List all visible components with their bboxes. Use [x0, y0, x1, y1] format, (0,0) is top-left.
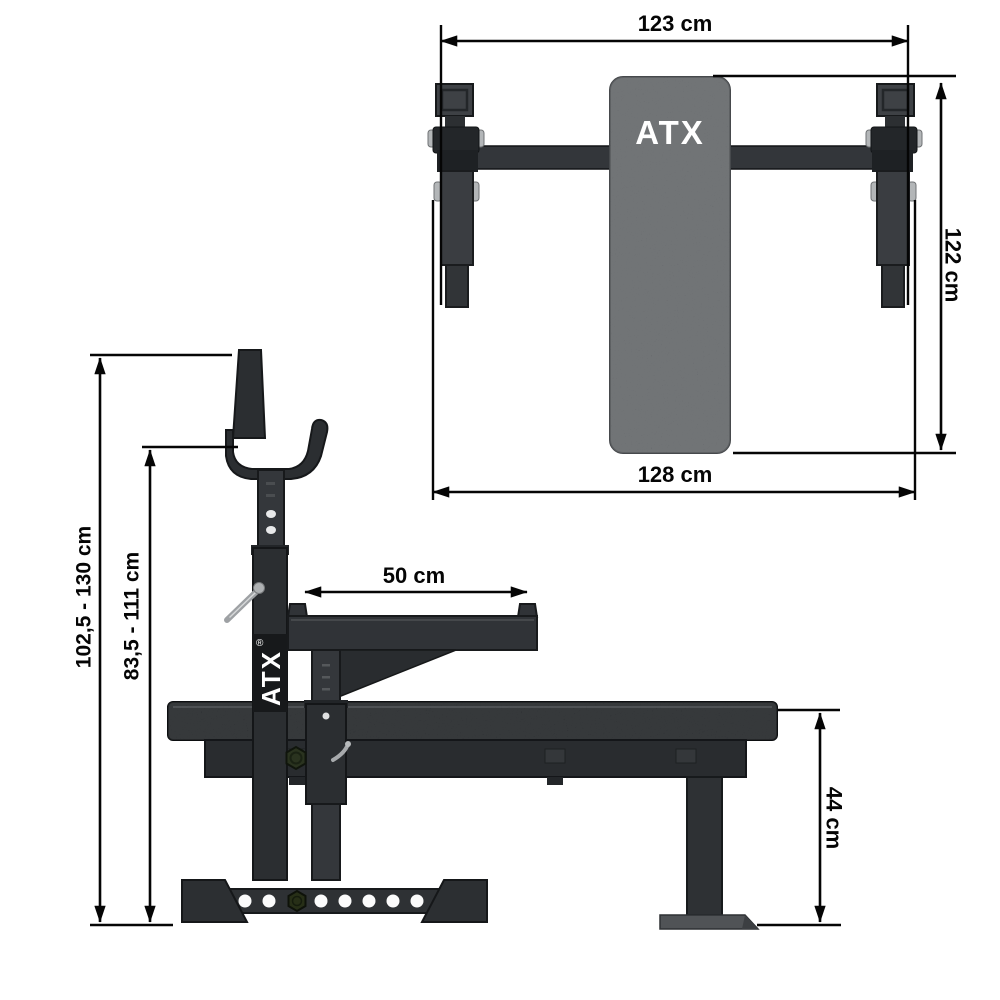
right-upright-top-view — [866, 84, 922, 307]
bench-pad-top-view: ATX — [610, 77, 730, 453]
atx-logo-pad: ATX — [635, 114, 705, 151]
svg-text:ATX: ATX — [256, 650, 286, 706]
outer-tube — [253, 548, 287, 880]
registered-mark: ® — [256, 638, 264, 649]
dim-length-label: 122 cm — [941, 228, 966, 303]
dim-bench-height: 44 cm — [757, 710, 847, 925]
dim-hook-height-label: 83,5 - 111 cm — [121, 552, 144, 680]
hex-bolt-base — [289, 891, 306, 911]
j-hook-blade — [233, 350, 265, 438]
hex-bolt-rail — [287, 747, 306, 769]
dim-length: 122 cm — [713, 76, 966, 453]
dim-deck-length: 50 cm — [305, 563, 527, 592]
technical-drawing: ATX 123 cm 122 cm 128 cm — [0, 0, 1000, 1000]
front-base — [182, 880, 487, 922]
drawing-canvas: ATX 123 cm 122 cm 128 cm — [0, 0, 1000, 1000]
dim-outer-width-label: 128 cm — [638, 462, 713, 487]
dim-bench-height-label: 44 cm — [822, 787, 847, 849]
dim-uprights-height: 102,5 - 130 cm — [73, 355, 233, 925]
dim-hook-height: 83,5 - 111 cm — [121, 447, 239, 922]
left-upright-top-view — [428, 84, 484, 307]
dim-deck-length-label: 50 cm — [383, 563, 445, 588]
top-view: ATX 123 cm 122 cm 128 cm — [428, 11, 966, 500]
dim-inner-width-label: 123 cm — [638, 11, 713, 36]
rear-leg — [660, 777, 758, 929]
atx-logo-upright: ATX ® — [253, 634, 287, 712]
dim-uprights-height-label: 102,5 - 130 cm — [73, 526, 96, 668]
